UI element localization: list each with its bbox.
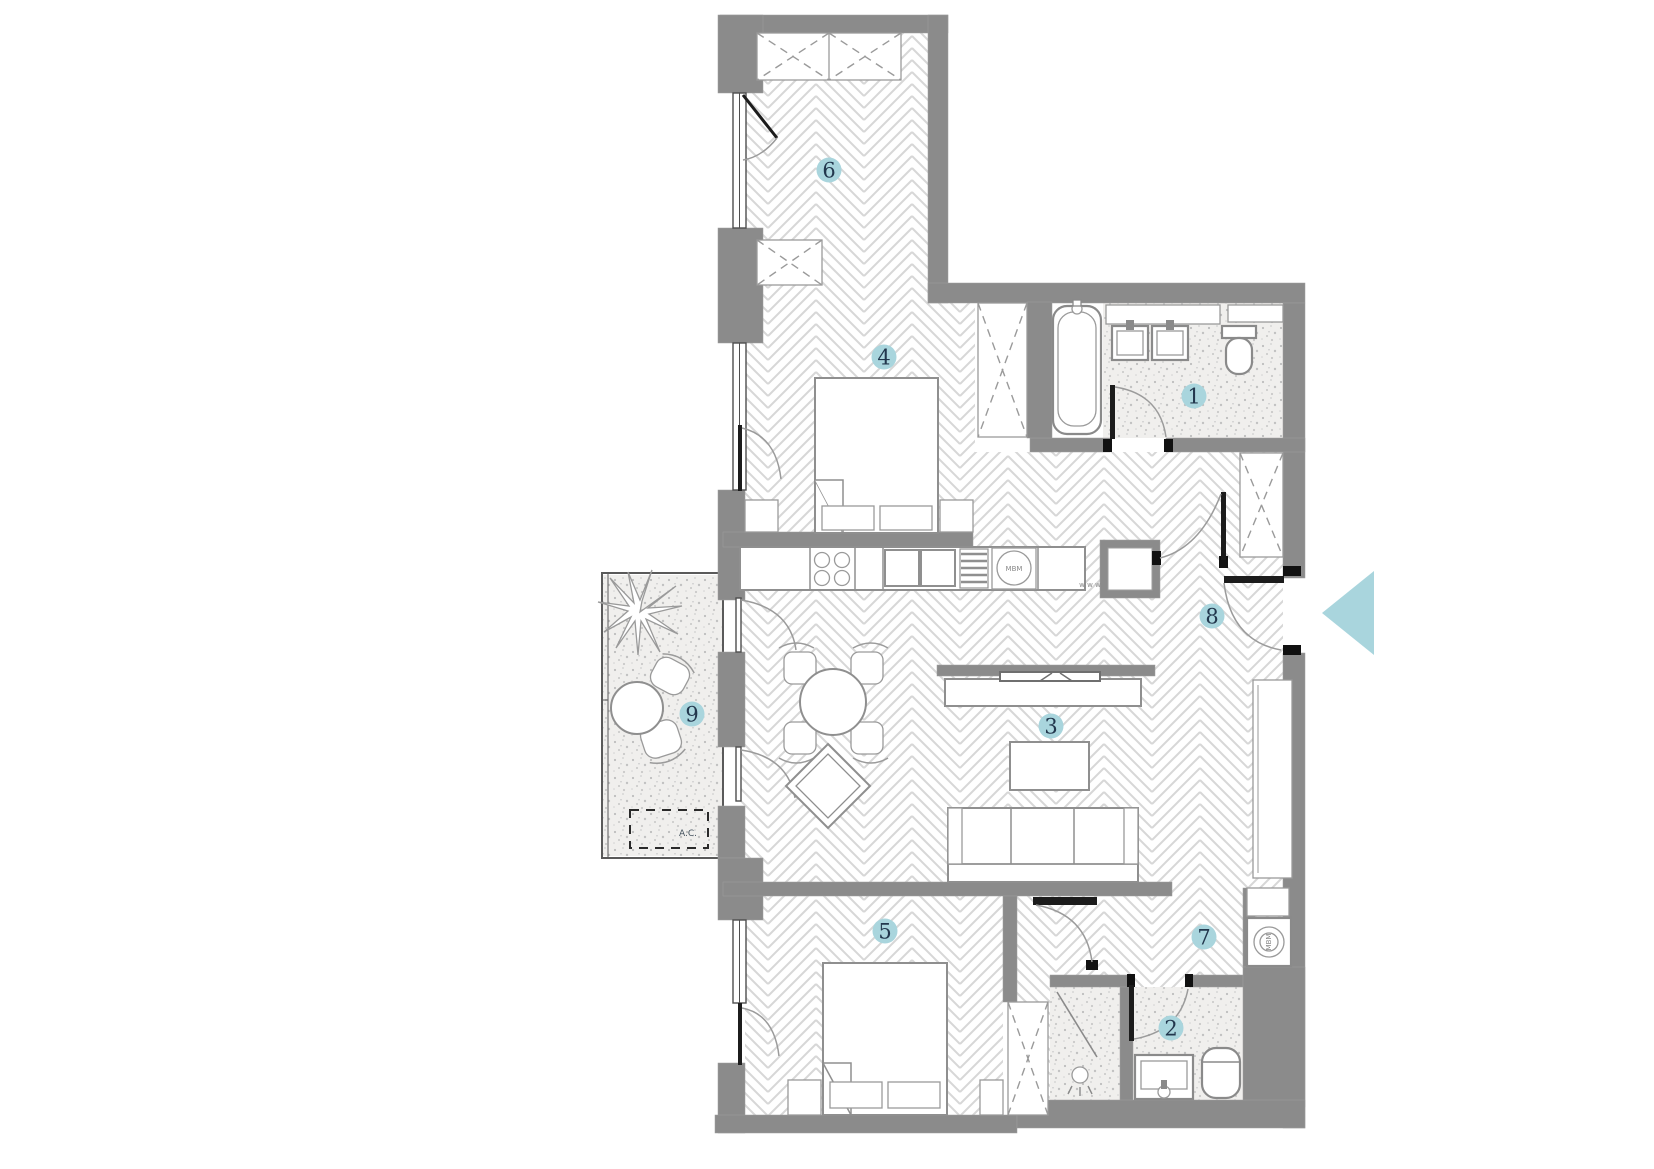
kitchen-appliance-label: MBM [1006, 565, 1023, 573]
room-marker-number: 9 [685, 703, 698, 727]
nightstand [940, 500, 973, 532]
room-marker-number: 8 [1205, 605, 1218, 629]
wardrobe-entry [1240, 453, 1283, 557]
room-marker-2: 2 [1159, 1016, 1184, 1041]
wall-segment [1050, 975, 1133, 987]
wall-segment [718, 228, 763, 343]
closet-room6 [757, 240, 822, 285]
wall-segment [718, 652, 745, 747]
room-marker-number: 5 [878, 920, 891, 944]
wall-segment [1027, 302, 1052, 438]
washing-machine-kitchen-icon: MBM [992, 548, 1036, 589]
dishwasher-icon [960, 549, 988, 588]
kitchen-sink-icon [885, 550, 955, 586]
washing-machine: MBM [1247, 888, 1291, 966]
room-marker-9: 9 [680, 702, 705, 727]
bathtub [1053, 300, 1101, 434]
room-marker-1: 1 [1182, 384, 1207, 409]
wardrobe-room6 [757, 33, 901, 80]
room-marker-4: 4 [872, 345, 897, 370]
coffee-table [1010, 742, 1089, 790]
nightstand [788, 1080, 821, 1115]
counter-marks: w w w [1079, 581, 1101, 589]
wall-segment [1017, 1100, 1305, 1128]
wall-segment [928, 283, 1305, 303]
room-marker-number: 4 [877, 346, 890, 370]
room-marker-8: 8 [1200, 604, 1225, 629]
wall-segment [723, 532, 973, 547]
room-marker-6: 6 [817, 158, 842, 183]
wardrobe-hall [1253, 680, 1292, 878]
wall-segment [715, 1115, 1017, 1133]
floor-shower-room [1050, 987, 1120, 1102]
room-marker-7: 7 [1192, 925, 1217, 950]
entrance-arrow-icon [1322, 571, 1374, 655]
ac-unit-label: A.C. [679, 829, 697, 839]
washing-machine-label: MBM [1265, 934, 1273, 951]
nightstand [745, 500, 778, 532]
wall-segment [1190, 975, 1243, 987]
bed-room5 [823, 963, 947, 1115]
wardrobe-bedroom5 [1008, 1002, 1048, 1115]
bed-room4 [815, 378, 938, 533]
nightstand [980, 1080, 1003, 1115]
floor-plan-svg: MBM w w w [0, 0, 1654, 1169]
wall-segment [1030, 438, 1110, 452]
room-marker-number: 7 [1197, 926, 1210, 950]
wall-segment [718, 15, 763, 93]
room-marker-3: 3 [1039, 714, 1064, 739]
kitchen-counter: MBM w w w [740, 547, 1101, 590]
wall-segment [718, 806, 745, 858]
room-marker-number: 2 [1164, 1017, 1177, 1041]
sink-bathroom2 [1135, 1055, 1193, 1099]
wall-segment [1243, 967, 1305, 1107]
floor-plan: MBM w w w [0, 0, 1654, 1169]
wall-pocket-niche [1108, 548, 1152, 590]
toilet-bathroom1 [1222, 326, 1256, 374]
room-marker-number: 3 [1044, 715, 1057, 739]
wall-segment [1003, 896, 1017, 1002]
closet-hall-top [978, 303, 1027, 437]
room-marker-number: 6 [822, 159, 835, 183]
tv-icon [1000, 672, 1100, 681]
room-marker-5: 5 [873, 919, 898, 944]
sofa [948, 808, 1138, 882]
room-marker-number: 1 [1187, 385, 1200, 409]
wall-segment [723, 882, 1172, 896]
toilet-bathroom2 [1202, 1048, 1240, 1098]
wall-segment [1166, 438, 1305, 452]
wall-segment [928, 15, 948, 303]
